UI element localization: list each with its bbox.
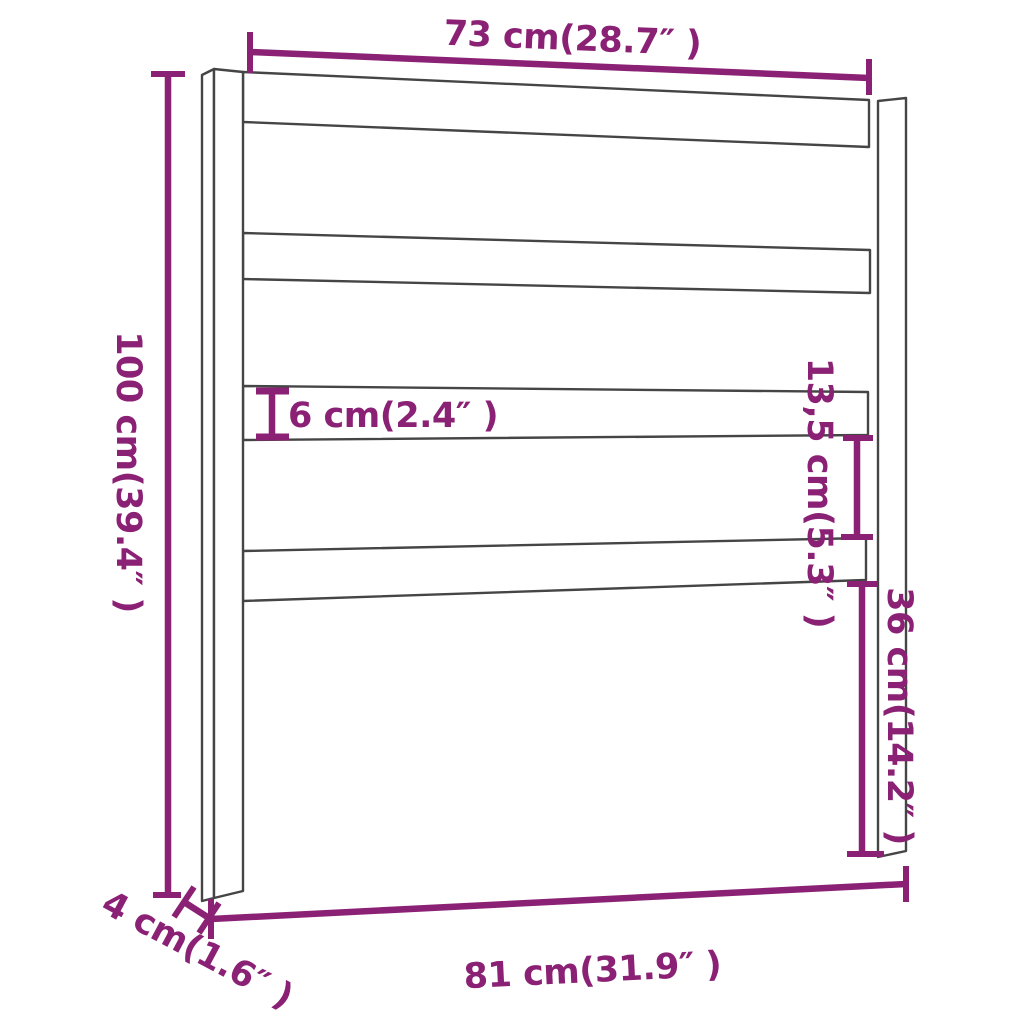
dimension-line-height-left <box>151 74 185 895</box>
slat-second <box>243 233 870 293</box>
dimension-label-lower-height: 36 cm(14.2″ ) <box>879 587 919 845</box>
headboard-dimension-drawing: 73 cm(28.7″ ) 100 cm(39.4″ ) 6 cm(2.4″ )… <box>0 0 1024 1024</box>
dimension-label-depth: 4 cm(1.6″ ) <box>95 883 299 1017</box>
dimension-line-width-bottom <box>211 866 906 939</box>
dimension-label-height-left: 100 cm(39.4″ ) <box>108 331 148 613</box>
left-post-side-face <box>202 69 214 901</box>
dimension-line-slat-gap <box>841 438 873 537</box>
left-post <box>214 69 243 898</box>
dimension-label-width-bottom: 81 cm(31.9″ ) <box>463 945 722 998</box>
slat-top <box>243 72 869 147</box>
product-dimension-image: 73 cm(28.7″ ) 100 cm(39.4″ ) 6 cm(2.4″ )… <box>0 0 1024 1024</box>
dimension-label-width-top: 73 cm(28.7″ ) <box>443 14 702 65</box>
dimension-label-slat-thickness: 6 cm(2.4″ ) <box>288 396 498 436</box>
dimension-label-slat-gap: 13,5 cm(5.3″ ) <box>799 358 839 629</box>
slat-fourth <box>243 538 866 601</box>
